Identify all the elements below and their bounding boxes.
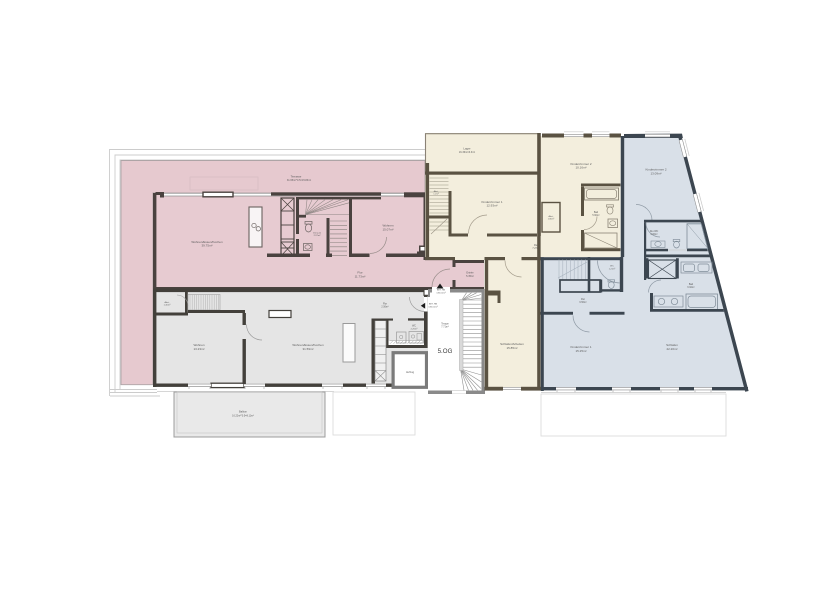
svg-text:135.01m²: 135.01m² [428,306,438,309]
svg-text:WC: WC [610,266,614,268]
svg-text:5.60m²: 5.60m² [592,214,599,217]
svg-text:22.20m²: 22.20m² [666,347,677,351]
svg-text:6.92m²: 6.92m² [687,286,694,289]
svg-text:Bad: Bad [594,211,599,214]
svg-text:2.26m²: 2.26m² [411,327,418,330]
svg-text:Abst.: Abst. [434,190,439,193]
svg-text:9.56m²: 9.56m² [579,301,586,304]
svg-text:13.09m²: 13.09m² [650,171,661,175]
svg-text:4.06m²: 4.06m² [650,233,657,236]
svg-text:Du./WC: Du./WC [650,230,659,233]
svg-text:WC: WC [412,326,416,328]
svg-text:7.71m²: 7.71m² [441,326,449,329]
svg-text:31.65m²*0.5=15.83m²: 31.65m²*0.5=15.83m² [287,179,311,182]
svg-text:BET. RB: BET. RB [429,304,438,306]
svg-text:11.73m²: 11.73m² [355,274,366,278]
svg-text:1.2m²: 1.2m² [433,193,439,196]
svg-text:10.16m²: 10.16m² [575,166,586,170]
svg-text:15.25m²: 15.25m² [575,349,586,353]
svg-text:Lager: Lager [463,147,470,151]
svg-text:13.23m²: 13.23m² [193,347,204,351]
svg-text:Flur: Flur [383,302,387,305]
svg-text:1.40m²: 1.40m² [164,304,171,307]
svg-text:2.56m²: 2.56m² [381,305,388,308]
svg-text:Abst.: Abst. [549,215,554,218]
svg-text:Bad: Bad [689,283,694,286]
svg-text:16.22m²*0.5=8.11m²: 16.22m²*0.5=8.11m² [232,414,254,417]
svg-text:135.01m²: 135.01m² [436,292,446,295]
svg-text:1.21m²: 1.21m² [609,267,616,270]
svg-text:BET. RB: BET. RB [437,290,446,292]
svg-text:Abst.: Abst. [165,301,170,304]
svg-text:5.OG: 5.OG [438,348,453,355]
svg-text:Balkon: Balkon [239,410,247,414]
svg-text:Aufzug: Aufzug [406,370,415,374]
svg-text:Vorraum: Vorraum [313,231,321,234]
svg-text:16.36m²/3.3m²: 16.36m²/3.3m² [459,151,475,154]
svg-text:15.85m²: 15.85m² [506,346,517,350]
svg-text:12.93m²: 12.93m² [486,204,497,208]
svg-text:Flur: Flur [581,298,585,301]
svg-text:2.97m²: 2.97m² [314,234,321,237]
svg-text:1.80m²: 1.80m² [548,218,555,221]
svg-text:31.59m²: 31.59m² [302,347,313,351]
svg-text:5.35m²: 5.35m² [466,275,474,278]
svg-text:Terrasse: Terrasse [291,175,302,179]
svg-text:39.75m²: 39.75m² [201,244,212,248]
svg-text:15.07m²: 15.07m² [382,227,393,231]
